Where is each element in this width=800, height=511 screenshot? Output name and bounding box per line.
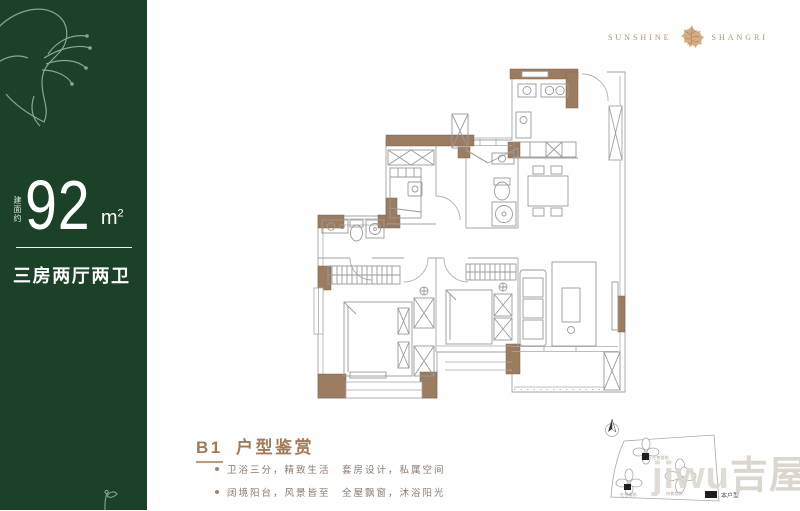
building-label: 在售楼栋 <box>652 454 669 461</box>
windows <box>314 72 620 399</box>
utility-shaft <box>609 106 622 160</box>
structural-walls <box>318 69 625 398</box>
bedroom-middle <box>446 264 516 344</box>
balcony <box>604 352 620 390</box>
living-room <box>520 262 618 346</box>
building-label: 待售楼栋 <box>666 490 683 497</box>
north-arrow-icon <box>606 419 619 437</box>
interior-walls <box>318 146 578 352</box>
bathroom-master <box>322 220 384 241</box>
site-plan: 在售楼栋 在售楼栋 待售楼栋 本户型 <box>606 419 740 501</box>
bathroom-central <box>452 114 516 226</box>
legend-swatch <box>705 491 717 498</box>
floorplan-poster: { "panel": { "area_prefix": "建面约", "area… <box>0 0 800 510</box>
bedroom-master <box>328 266 434 378</box>
floor-plan: 在售楼栋 在售楼栋 待售楼栋 本户型 <box>0 0 800 510</box>
building-label: 在售楼栋 <box>620 491 637 498</box>
outer-walls <box>318 72 625 398</box>
legend-label: 本户型 <box>721 492 739 500</box>
dining-area <box>528 166 568 216</box>
